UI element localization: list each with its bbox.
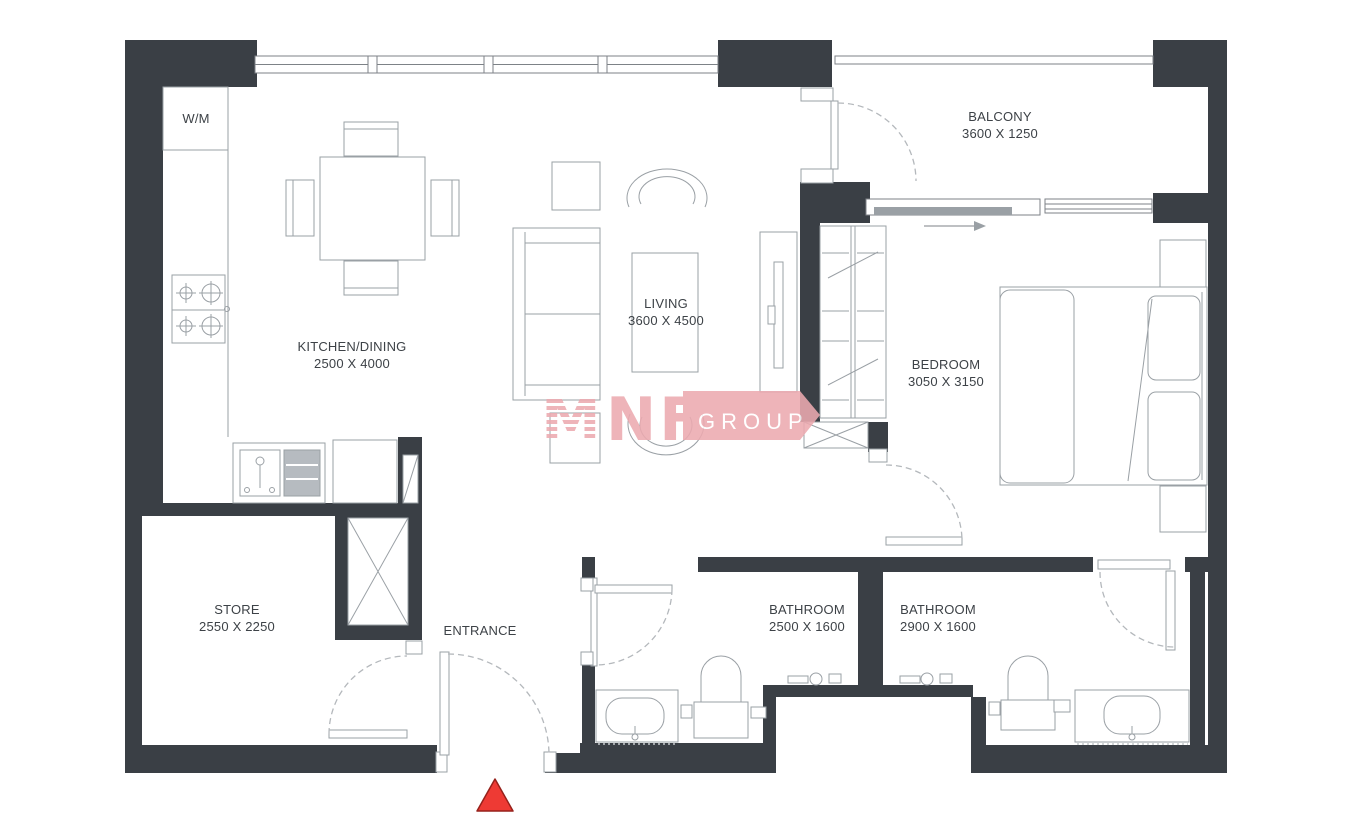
kitchen-dims: 2500 X 4000 (298, 355, 407, 372)
bathroom1-toilet-icon (681, 656, 766, 738)
entrance-text: ENTRANCE (443, 622, 516, 639)
kitchen-sink-icon (233, 443, 325, 503)
balcony-dims: 3600 X 1250 (962, 125, 1038, 142)
bedroom-duct-x-box (804, 422, 868, 448)
entrance-door-swing (436, 652, 556, 772)
room-label-wm: W/M (182, 110, 209, 127)
kitchen-window (255, 56, 718, 73)
logo-group-text: GROUP (698, 409, 809, 434)
stove-icon (172, 275, 230, 343)
bed (1000, 287, 1207, 485)
balcony-railing (835, 56, 1153, 64)
room-label-entrance: ENTRANCE (443, 622, 516, 639)
bathroom2-toilet-icon (989, 656, 1070, 730)
bathroom1-door-swing (581, 578, 672, 666)
store-dims: 2550 X 2250 (199, 618, 275, 635)
bedroom-door-swing (869, 449, 962, 545)
floor-plan-canvas: M NF GROUP W/M KITCHEN/DINING 2500 X 400… (0, 0, 1354, 832)
bathroom1-name: BATHROOM (769, 601, 845, 618)
nightstand-bottom (1160, 486, 1206, 532)
dining-table (286, 122, 459, 295)
wardrobe (820, 226, 886, 418)
room-label-living: LIVING 3600 X 4500 (628, 295, 704, 329)
side-table-top (552, 162, 600, 210)
bathroom1-towel-rail-icon (788, 673, 841, 685)
balcony-sliding-door (866, 199, 1040, 231)
room-label-store: STORE 2550 X 2250 (199, 601, 275, 635)
armchair-top (627, 169, 707, 207)
balcony-name: BALCONY (962, 108, 1038, 125)
entrance-arrow-marker (477, 779, 513, 811)
kitchen-name: KITCHEN/DINING (298, 338, 407, 355)
room-label-bedroom: BEDROOM 3050 X 3150 (908, 356, 984, 390)
logo-m-striped: M (541, 385, 601, 455)
sofa (513, 228, 600, 400)
store-door-swing (329, 641, 422, 738)
bedroom-window (1045, 199, 1152, 213)
bathroom1-vanity-icon (596, 690, 678, 744)
bathroom1-dims: 2500 X 1600 (769, 618, 845, 635)
bedroom-dims: 3050 X 3150 (908, 373, 984, 390)
nightstand-top (1160, 240, 1206, 287)
living-name: LIVING (628, 295, 704, 312)
bedroom-name: BEDROOM (908, 356, 984, 373)
room-label-bathroom2: BATHROOM 2900 X 1600 (900, 601, 976, 635)
room-label-balcony: BALCONY 3600 X 1250 (962, 108, 1038, 142)
logo-watermark: M NF GROUP (541, 385, 820, 455)
bathroom2-door-swing (1098, 560, 1175, 650)
bathroom2-vanity-icon (1075, 690, 1189, 744)
room-label-bathroom1: BATHROOM 2500 X 1600 (769, 601, 845, 635)
bathroom2-dims: 2900 X 1600 (900, 618, 976, 635)
bathroom2-towel-rail-icon (900, 673, 952, 685)
living-dims: 3600 X 4500 (628, 312, 704, 329)
wm-text: W/M (182, 110, 209, 127)
tv-unit (760, 232, 797, 392)
store-name: STORE (199, 601, 275, 618)
balcony-door-swing (801, 88, 916, 183)
bathroom2-name: BATHROOM (900, 601, 976, 618)
room-label-kitchen-dining: KITCHEN/DINING 2500 X 4000 (298, 338, 407, 372)
